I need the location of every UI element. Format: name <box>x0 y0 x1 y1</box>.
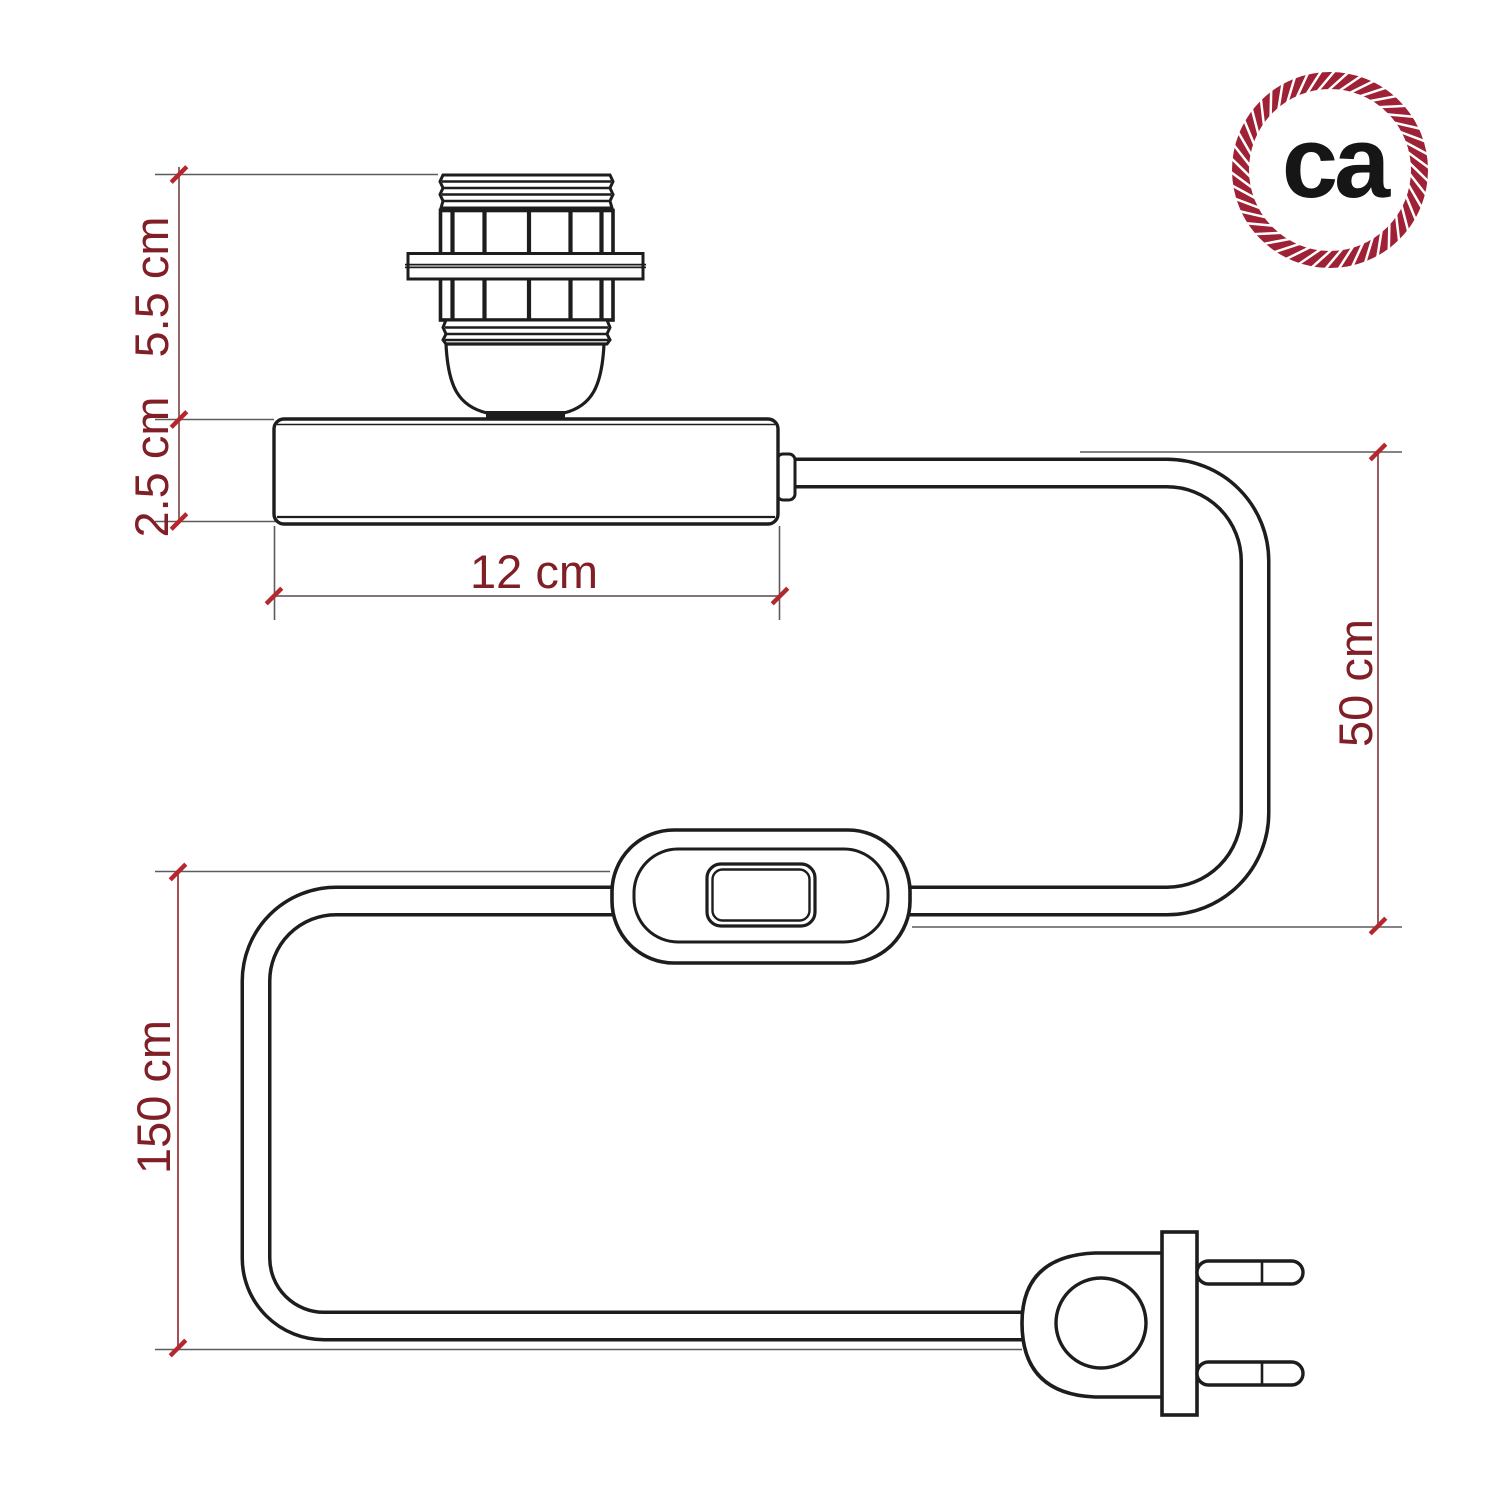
svg-text:5.5 cm: 5.5 cm <box>125 216 178 357</box>
svg-text:50 cm: 50 cm <box>1329 619 1382 747</box>
svg-text:ca: ca <box>1282 107 1391 219</box>
svg-text:150 cm: 150 cm <box>127 1020 180 1174</box>
svg-text:2.5 cm: 2.5 cm <box>125 396 178 537</box>
svg-text:12 cm: 12 cm <box>470 545 598 598</box>
